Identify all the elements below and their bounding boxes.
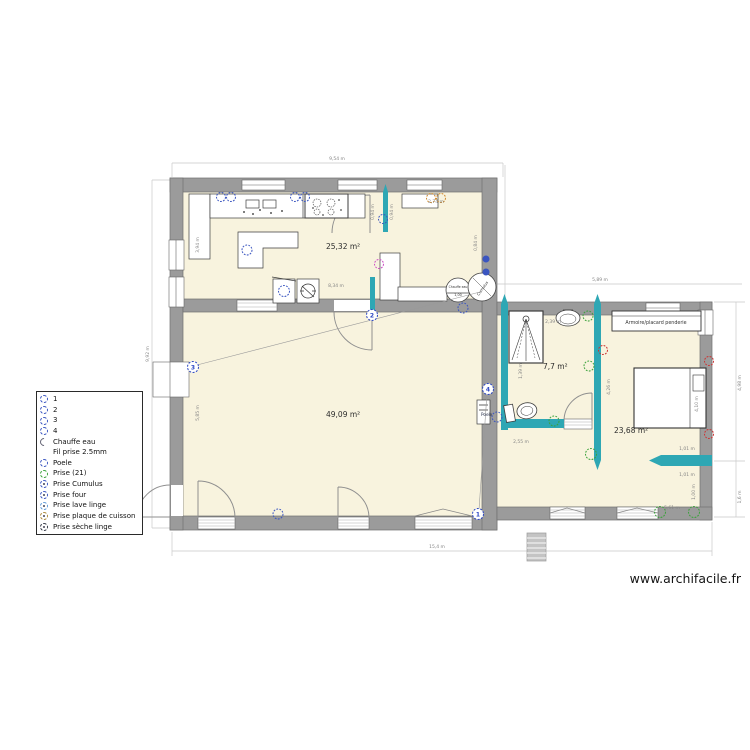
dim-label: 0,84 m	[473, 235, 479, 251]
dim-label: 4,10 m	[694, 396, 700, 412]
socket-icon	[40, 512, 48, 520]
sink-basin	[263, 200, 276, 208]
wall-left	[170, 178, 183, 530]
dim-label: 8,34 m	[328, 283, 344, 289]
legend-label: Prise plaque de cuisson	[53, 511, 135, 522]
socket-icon	[40, 523, 48, 531]
wire-icon	[40, 448, 48, 456]
svg-text:3: 3	[191, 365, 195, 372]
dim-label: 9,92 m	[145, 346, 151, 362]
socket-icon	[40, 427, 48, 435]
window	[407, 180, 442, 190]
dim-label: 1,01 m	[679, 472, 695, 478]
passage-threshold	[237, 300, 277, 311]
window	[169, 240, 184, 270]
dim-label: 1,39 m	[518, 363, 524, 379]
legend-item-2: 2	[40, 405, 140, 416]
door-gap	[334, 300, 372, 311]
door-threshold	[338, 517, 369, 529]
svg-text:1: 1	[476, 512, 480, 519]
partition-kitchen-lower	[370, 277, 375, 312]
dim-label: 0,94 m	[370, 204, 376, 220]
wall-top-left-building	[170, 178, 497, 192]
socket-icon	[40, 406, 48, 414]
window-sill	[617, 507, 658, 519]
dim-label: 9,54 m	[329, 156, 345, 162]
legend-label: Chauffe eau	[53, 437, 95, 448]
legend-item-1: 1	[40, 394, 140, 405]
legend-box: 1 2 3 4 Chauffe eau Fil prise 2.5mm Poel…	[36, 391, 143, 535]
wardrobe-label: Armoire/placard penderie	[625, 320, 686, 326]
dim-label: 1,01 m	[679, 446, 695, 452]
legend-item-poele: Poele	[40, 458, 140, 469]
legend-label: Prise Cumulus	[53, 479, 103, 490]
dishwasher	[297, 279, 319, 303]
low-sideboard	[398, 287, 447, 301]
window	[338, 180, 377, 190]
legend-label: Prise sèche linge	[53, 522, 112, 533]
legend-item-4: 4	[40, 426, 140, 437]
sink-basin	[246, 200, 259, 208]
water-heater-icon	[38, 436, 49, 447]
tall-unit	[380, 253, 400, 300]
bedroom-area-label: 23,68 m²	[614, 426, 648, 435]
legend-item-prise-cumulus: Prise Cumulus	[40, 479, 140, 490]
partition-end-marker	[594, 294, 601, 304]
dim-label: 5,85 m	[195, 405, 201, 421]
switch-icon	[483, 269, 490, 276]
poele-label: Poele	[481, 412, 493, 417]
switch-icon	[483, 256, 490, 263]
chauffe-eau-label: Chauffe eau	[449, 285, 468, 289]
door-gap	[171, 485, 183, 516]
svg-text:2: 2	[370, 313, 374, 320]
door-threshold	[564, 419, 592, 429]
socket-icon	[40, 491, 48, 499]
legend-item-prise-seche-linge: Prise sèche linge	[40, 522, 140, 533]
dim-label: 3,94 m	[195, 237, 201, 253]
svg-text:4: 4	[486, 387, 490, 394]
dim-label: 1,00 m	[691, 484, 697, 500]
legend-item-prise-21: Prise (21)	[40, 468, 140, 479]
legend-label: Poele	[53, 458, 72, 469]
partition-kitchen-upper	[383, 192, 388, 232]
partition-end-marker	[501, 294, 508, 304]
dim-label: 2,39 m	[545, 319, 561, 325]
stove-icon	[40, 459, 48, 467]
legend-label: Prise (21)	[53, 468, 86, 479]
floor-plan-canvas[interactable]: 1 2 3 4 25,32 m² 49,09 m² 7,7 m² 23,68 m…	[0, 0, 750, 750]
socket-icon	[40, 395, 48, 403]
legend-label: 1	[53, 394, 57, 405]
legend-label: 4	[53, 426, 57, 437]
cooktop	[305, 194, 348, 218]
partition-bedroom-right	[661, 455, 712, 466]
chauffe-eau-circle	[446, 278, 470, 302]
dim-label: 1,6 m	[737, 491, 743, 504]
socket-icon	[40, 502, 48, 510]
watermark: www.archifacile.fr	[630, 571, 742, 586]
french-window-threshold	[415, 517, 472, 529]
legend-label: Fil prise 2.5mm	[53, 447, 107, 458]
dim-label: 4,26 m	[606, 379, 612, 395]
washing-machine	[272, 277, 296, 303]
marker-1: 1	[473, 509, 484, 520]
legend-label: 3	[53, 415, 57, 426]
window	[153, 362, 189, 397]
bathroom-area-label: 7,7 m²	[543, 362, 568, 371]
legend-label: Prise lave linge	[53, 500, 106, 511]
dim-label: 5,89 m	[592, 277, 608, 283]
legend-item-prise-lave-linge: Prise lave linge	[40, 500, 140, 511]
legend-label: 2	[53, 405, 57, 416]
exterior-step[interactable]	[527, 533, 546, 561]
marker-2: 2	[367, 310, 378, 321]
partition-bathroom-bottom	[508, 419, 564, 428]
dim-label: 5,61 m	[664, 505, 680, 511]
pillow	[693, 375, 704, 391]
marker-4: 4	[483, 384, 494, 395]
legend-item-fil-prise: Fil prise 2.5mm	[40, 447, 140, 458]
partition-bath-bedroom-divider	[594, 304, 601, 460]
door-threshold	[198, 517, 235, 529]
marker-3: 3	[188, 362, 199, 373]
dim-label: 4,98 m	[737, 375, 743, 391]
legend-item-3: 3	[40, 415, 140, 426]
legend-item-chauffe-eau: Chauffe eau	[40, 437, 140, 448]
legend-label: Prise four	[53, 490, 86, 501]
window-sill	[550, 507, 585, 519]
dim-label: 15,4 m	[429, 544, 445, 550]
dim-label: 0,94 m	[389, 204, 395, 220]
floor-plan-page: 1 2 3 4 25,32 m² 49,09 m² 7,7 m² 23,68 m…	[0, 0, 750, 750]
wall-middle-vertical	[482, 178, 497, 530]
living-area-label: 49,09 m²	[326, 410, 360, 419]
socket-icon	[40, 417, 48, 425]
window	[242, 180, 285, 190]
legend-item-prise-four: Prise four	[40, 490, 140, 501]
kitchen-area-label: 25,32 m²	[326, 242, 360, 251]
socket-icon	[40, 470, 48, 478]
legend-item-prise-plaque-cuisson: Prise plaque de cuisson	[40, 511, 140, 522]
shower	[509, 311, 543, 363]
window	[169, 277, 184, 307]
socket-icon	[40, 480, 48, 488]
dim-label: 2,74 m	[428, 199, 444, 205]
chauffe-eau-size: 1,00	[454, 293, 462, 297]
dim-label: 2,55 m	[513, 439, 529, 445]
